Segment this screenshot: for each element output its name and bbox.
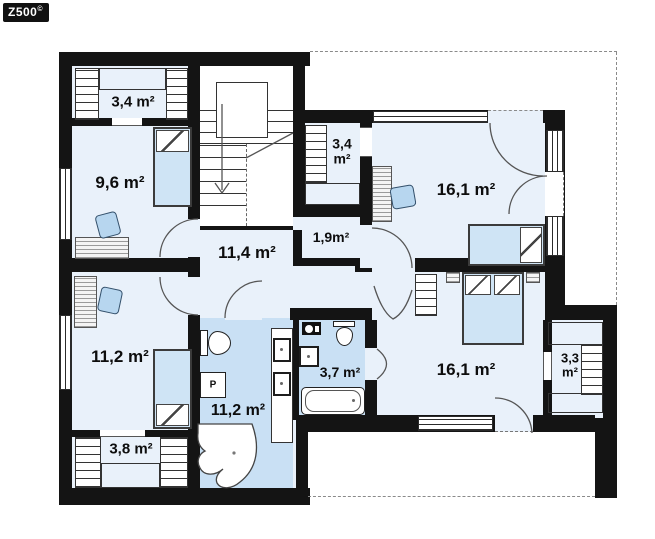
wall <box>72 258 192 272</box>
closet-shelves <box>166 68 188 120</box>
roof-outline <box>308 496 595 497</box>
door-opening-bedroom-bottom-right <box>372 258 415 272</box>
balcony-door-opening <box>488 110 543 123</box>
stair-void <box>216 82 268 138</box>
roof-outline <box>310 51 617 52</box>
chair <box>389 184 416 210</box>
window <box>59 168 72 240</box>
room-label-wardrobe-right: 3,3 m² <box>561 351 579 378</box>
room-label-storage: 1,9m² <box>313 229 350 245</box>
desk <box>74 276 97 328</box>
label-line: m² <box>332 151 351 166</box>
window <box>59 315 72 390</box>
vent-unit-switch <box>315 326 319 332</box>
room-label-bedroom-bottom-right: 16,1 m² <box>437 360 496 380</box>
bathtub-drain <box>352 399 355 402</box>
nightstand <box>526 272 540 283</box>
room-label-bedroom-top-left: 9,6 m² <box>95 173 144 193</box>
closet-shelves <box>75 437 101 488</box>
opening-wardrobe-bottom-left <box>100 430 145 437</box>
room-label-bedroom-top-right: 16,1 m² <box>437 180 496 200</box>
opening-wardrobe-top-left <box>112 118 142 126</box>
closet-shelves <box>415 274 437 316</box>
stair-treads <box>200 144 246 206</box>
opening-wardrobe-right <box>543 352 552 380</box>
room-label-wardrobe-top-left: 3,4 m² <box>111 94 154 111</box>
closet-shelves <box>75 68 99 120</box>
closet-rail <box>305 183 360 205</box>
door-opening-ensuite <box>365 348 377 380</box>
z500-logo: Z500© <box>3 3 49 22</box>
room-label-wardrobe-by-stairs: 3,4 m² <box>332 136 351 165</box>
washing-machine-label: P <box>210 380 217 391</box>
closet-shelves <box>160 437 188 488</box>
wall <box>59 52 72 505</box>
label-line: 3,4 <box>332 136 351 151</box>
logo-text: Z500 <box>8 5 37 19</box>
door-opening-right <box>545 172 564 216</box>
pillow <box>465 275 491 295</box>
label-line: 3,3 <box>561 351 579 365</box>
sink-drain <box>280 348 283 351</box>
wall-stub <box>293 230 302 258</box>
wall <box>595 432 617 498</box>
closet-rail <box>548 393 603 413</box>
sink-drain <box>307 355 310 358</box>
wall <box>59 52 310 66</box>
wall <box>59 488 310 505</box>
pillow <box>156 404 189 426</box>
toilet-tank <box>200 330 208 356</box>
door-opening-bedroom-bottom-left <box>188 277 200 315</box>
wall <box>293 52 305 217</box>
roof-outline <box>616 52 617 305</box>
closet-shelves <box>305 125 327 183</box>
window <box>373 111 488 123</box>
terrace-door-opening <box>495 415 533 432</box>
pillow <box>520 227 542 263</box>
logo-copyright-mark: © <box>37 6 43 13</box>
floor-plan: P 3,4 m² <box>0 0 655 539</box>
window <box>418 416 493 431</box>
pillow <box>156 130 189 152</box>
desk <box>75 237 129 259</box>
closet-rail <box>548 322 603 345</box>
stairs-edge <box>200 226 293 230</box>
stair-treads-hidden <box>246 144 293 226</box>
door-opening-bathroom-main <box>225 308 262 320</box>
window <box>546 216 564 256</box>
vent-unit-knob <box>305 325 313 333</box>
window <box>546 130 564 172</box>
door-opening-bedroom-top-right <box>360 225 372 268</box>
room-label-wardrobe-bottom-left: 3,8 m² <box>109 441 152 458</box>
sink-drain <box>280 382 283 385</box>
closet-shelves <box>581 345 603 395</box>
pillow <box>494 275 520 295</box>
closet-rail <box>99 68 166 90</box>
wall <box>290 308 372 320</box>
wall <box>545 418 617 432</box>
desk <box>372 166 392 222</box>
room-label-hall: 11,4 m² <box>218 243 276 263</box>
opening-wardrobe-by-stairs <box>360 127 372 157</box>
nightstand <box>446 272 460 283</box>
room-label-bedroom-bottom-left: 11,2 m² <box>91 347 149 367</box>
room-label-bathroom-main: 11,2 m² <box>211 402 265 420</box>
door-opening-bedroom-top-left <box>188 219 200 257</box>
exterior-top-right <box>305 52 620 110</box>
exterior-right <box>565 110 620 305</box>
closet-rail <box>101 463 160 488</box>
room-label-bathroom-ensuite: 3,7 m² <box>320 364 360 380</box>
label-line: m² <box>561 365 579 379</box>
wall <box>603 305 617 432</box>
